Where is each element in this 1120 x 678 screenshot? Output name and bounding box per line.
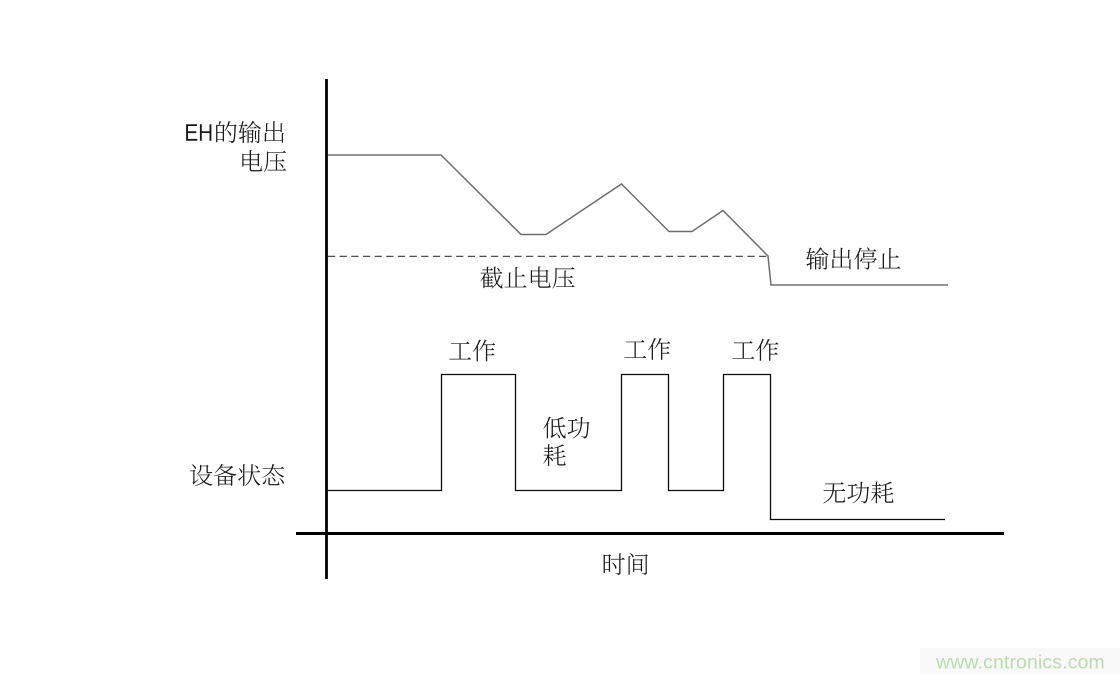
svg-text:www.cntronics.com: www.cntronics.com: [935, 652, 1105, 674]
